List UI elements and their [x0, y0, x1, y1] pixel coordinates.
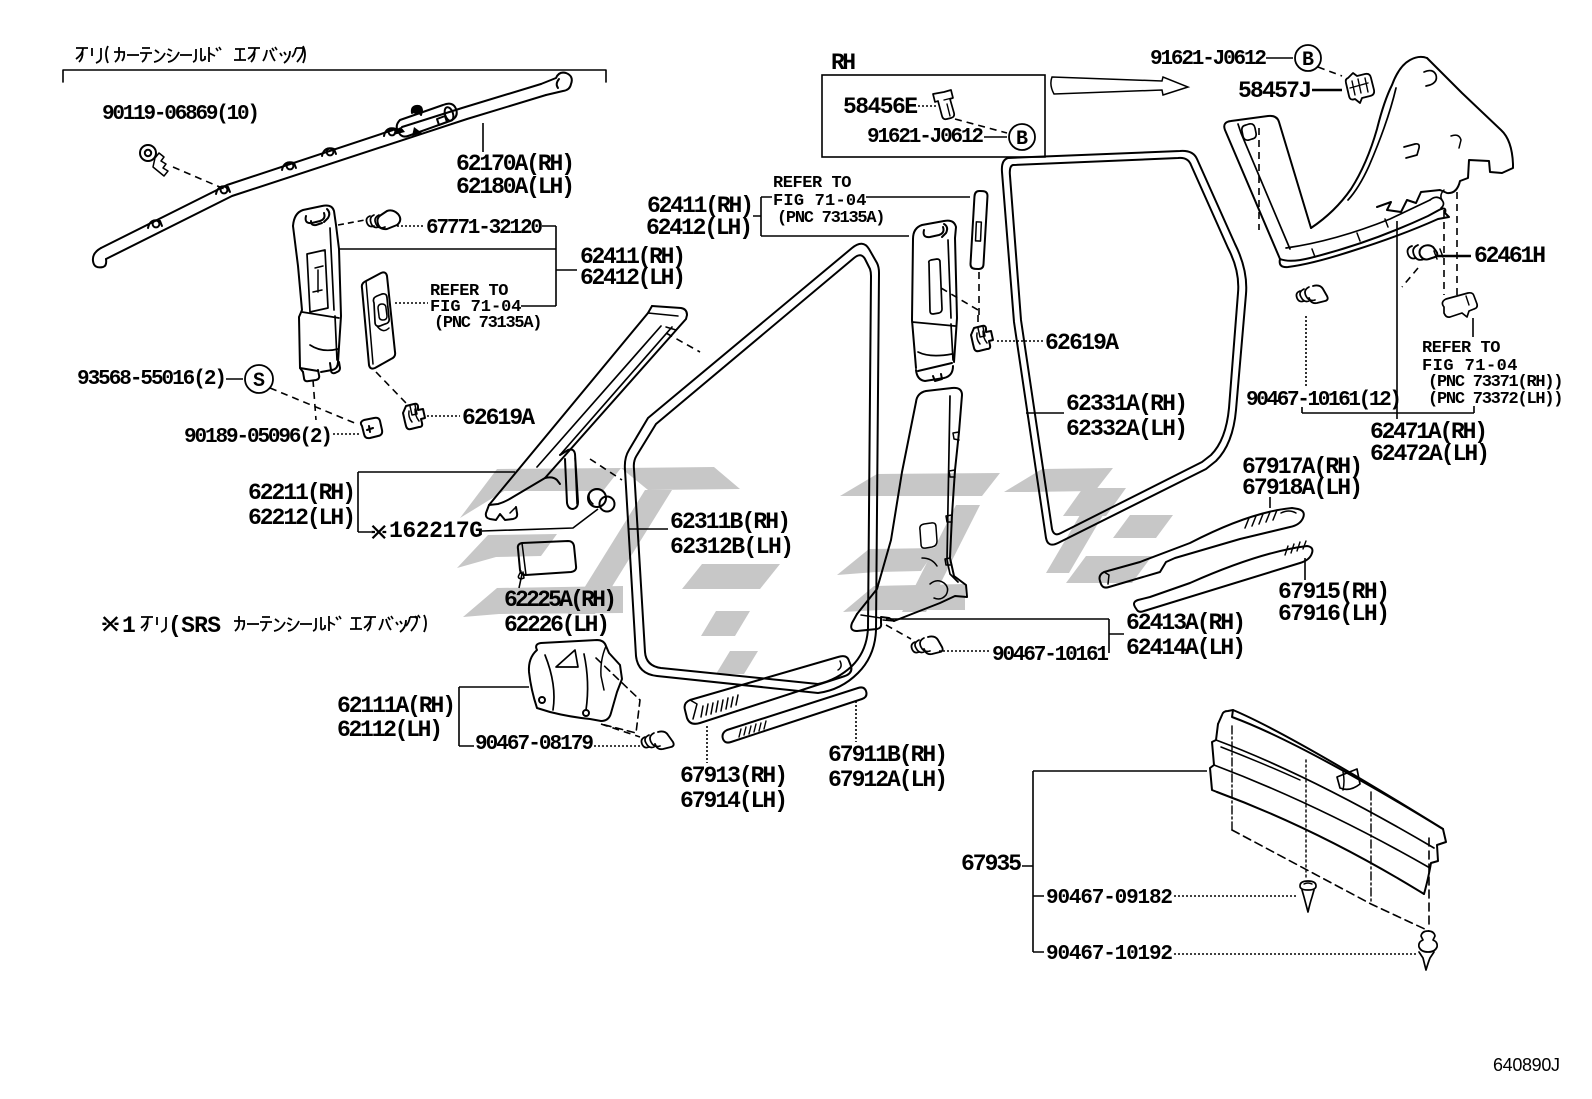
svg-text:B: B: [1302, 49, 1314, 72]
svg-text:90189-05096(2): 90189-05096(2): [184, 426, 332, 449]
svg-text:62311B(RH): 62311B(RH): [670, 509, 790, 535]
svg-text:62412(LH): 62412(LH): [580, 265, 685, 291]
svg-text:62472A(LH): 62472A(LH): [1370, 441, 1489, 467]
svg-text:62414A(LH): 62414A(LH): [1126, 635, 1245, 661]
svg-text:62180A(LH): 62180A(LH): [456, 174, 574, 200]
svg-text:62211(RH): 62211(RH): [248, 480, 355, 506]
svg-text:62212(LH): 62212(LH): [248, 505, 355, 531]
svg-text:62225A(RH): 62225A(RH): [504, 587, 616, 613]
svg-text:67913(RH): 67913(RH): [680, 763, 787, 789]
svg-text:(PNC 73372(LH)): (PNC 73372(LH)): [1428, 390, 1563, 409]
svg-text:67912A(LH): 67912A(LH): [828, 767, 947, 793]
svg-text:162217G: 162217G: [389, 518, 482, 544]
svg-text:67914(LH): 67914(LH): [680, 788, 787, 814]
svg-text:62332A(LH): 62332A(LH): [1066, 416, 1187, 442]
svg-text:B: B: [1016, 128, 1028, 151]
svg-text:58457J: 58457J: [1238, 78, 1311, 104]
svg-text:93568-55016(2): 93568-55016(2): [77, 368, 226, 391]
svg-text:62112(LH): 62112(LH): [337, 717, 442, 743]
svg-text:62461H: 62461H: [1474, 243, 1545, 269]
svg-text:67771-32120: 67771-32120: [426, 217, 542, 240]
svg-text:REFER TO: REFER TO: [1422, 339, 1500, 358]
svg-text:(SRS: (SRS: [168, 613, 221, 639]
svg-text:RH: RH: [831, 50, 855, 76]
svg-text:90119-06869(10): 90119-06869(10): [102, 103, 259, 126]
svg-text:(PNC 73135A): (PNC 73135A): [777, 209, 885, 228]
svg-text:640890J: 640890J: [1493, 1055, 1560, 1075]
svg-text:90467-10192: 90467-10192: [1046, 943, 1172, 966]
svg-text:62111A(RH): 62111A(RH): [337, 693, 455, 719]
svg-text:67916(LH): 67916(LH): [1278, 601, 1389, 627]
svg-text:91621-J0612: 91621-J0612: [1150, 48, 1266, 71]
svg-text:90467-08179: 90467-08179: [475, 733, 593, 756]
svg-text:90467-10161(12): 90467-10161(12): [1246, 389, 1401, 412]
svg-text:67935: 67935: [961, 851, 1021, 877]
svg-text:S: S: [253, 370, 265, 393]
svg-text:62412(LH): 62412(LH): [646, 215, 752, 241]
svg-text:90467-10161: 90467-10161: [992, 644, 1108, 667]
svg-text:67911B(RH): 67911B(RH): [828, 742, 947, 768]
svg-text:91621-J0612: 91621-J0612: [867, 126, 983, 149]
svg-text:62226(LH): 62226(LH): [504, 612, 609, 638]
svg-text:62312B(LH): 62312B(LH): [670, 534, 793, 560]
svg-text:REFER TO: REFER TO: [773, 174, 851, 193]
svg-text:62619A: 62619A: [462, 405, 535, 431]
svg-text:62619A: 62619A: [1045, 330, 1119, 356]
svg-text:58456E: 58456E: [843, 94, 917, 120]
svg-text:62413A(RH): 62413A(RH): [1126, 610, 1245, 636]
svg-text:(PNC 73135A): (PNC 73135A): [434, 314, 542, 333]
svg-text:1: 1: [122, 613, 135, 639]
svg-text:67918A(LH): 67918A(LH): [1242, 475, 1362, 501]
svg-text:62331A(RH): 62331A(RH): [1066, 391, 1187, 417]
svg-text:90467-09182: 90467-09182: [1046, 887, 1172, 910]
